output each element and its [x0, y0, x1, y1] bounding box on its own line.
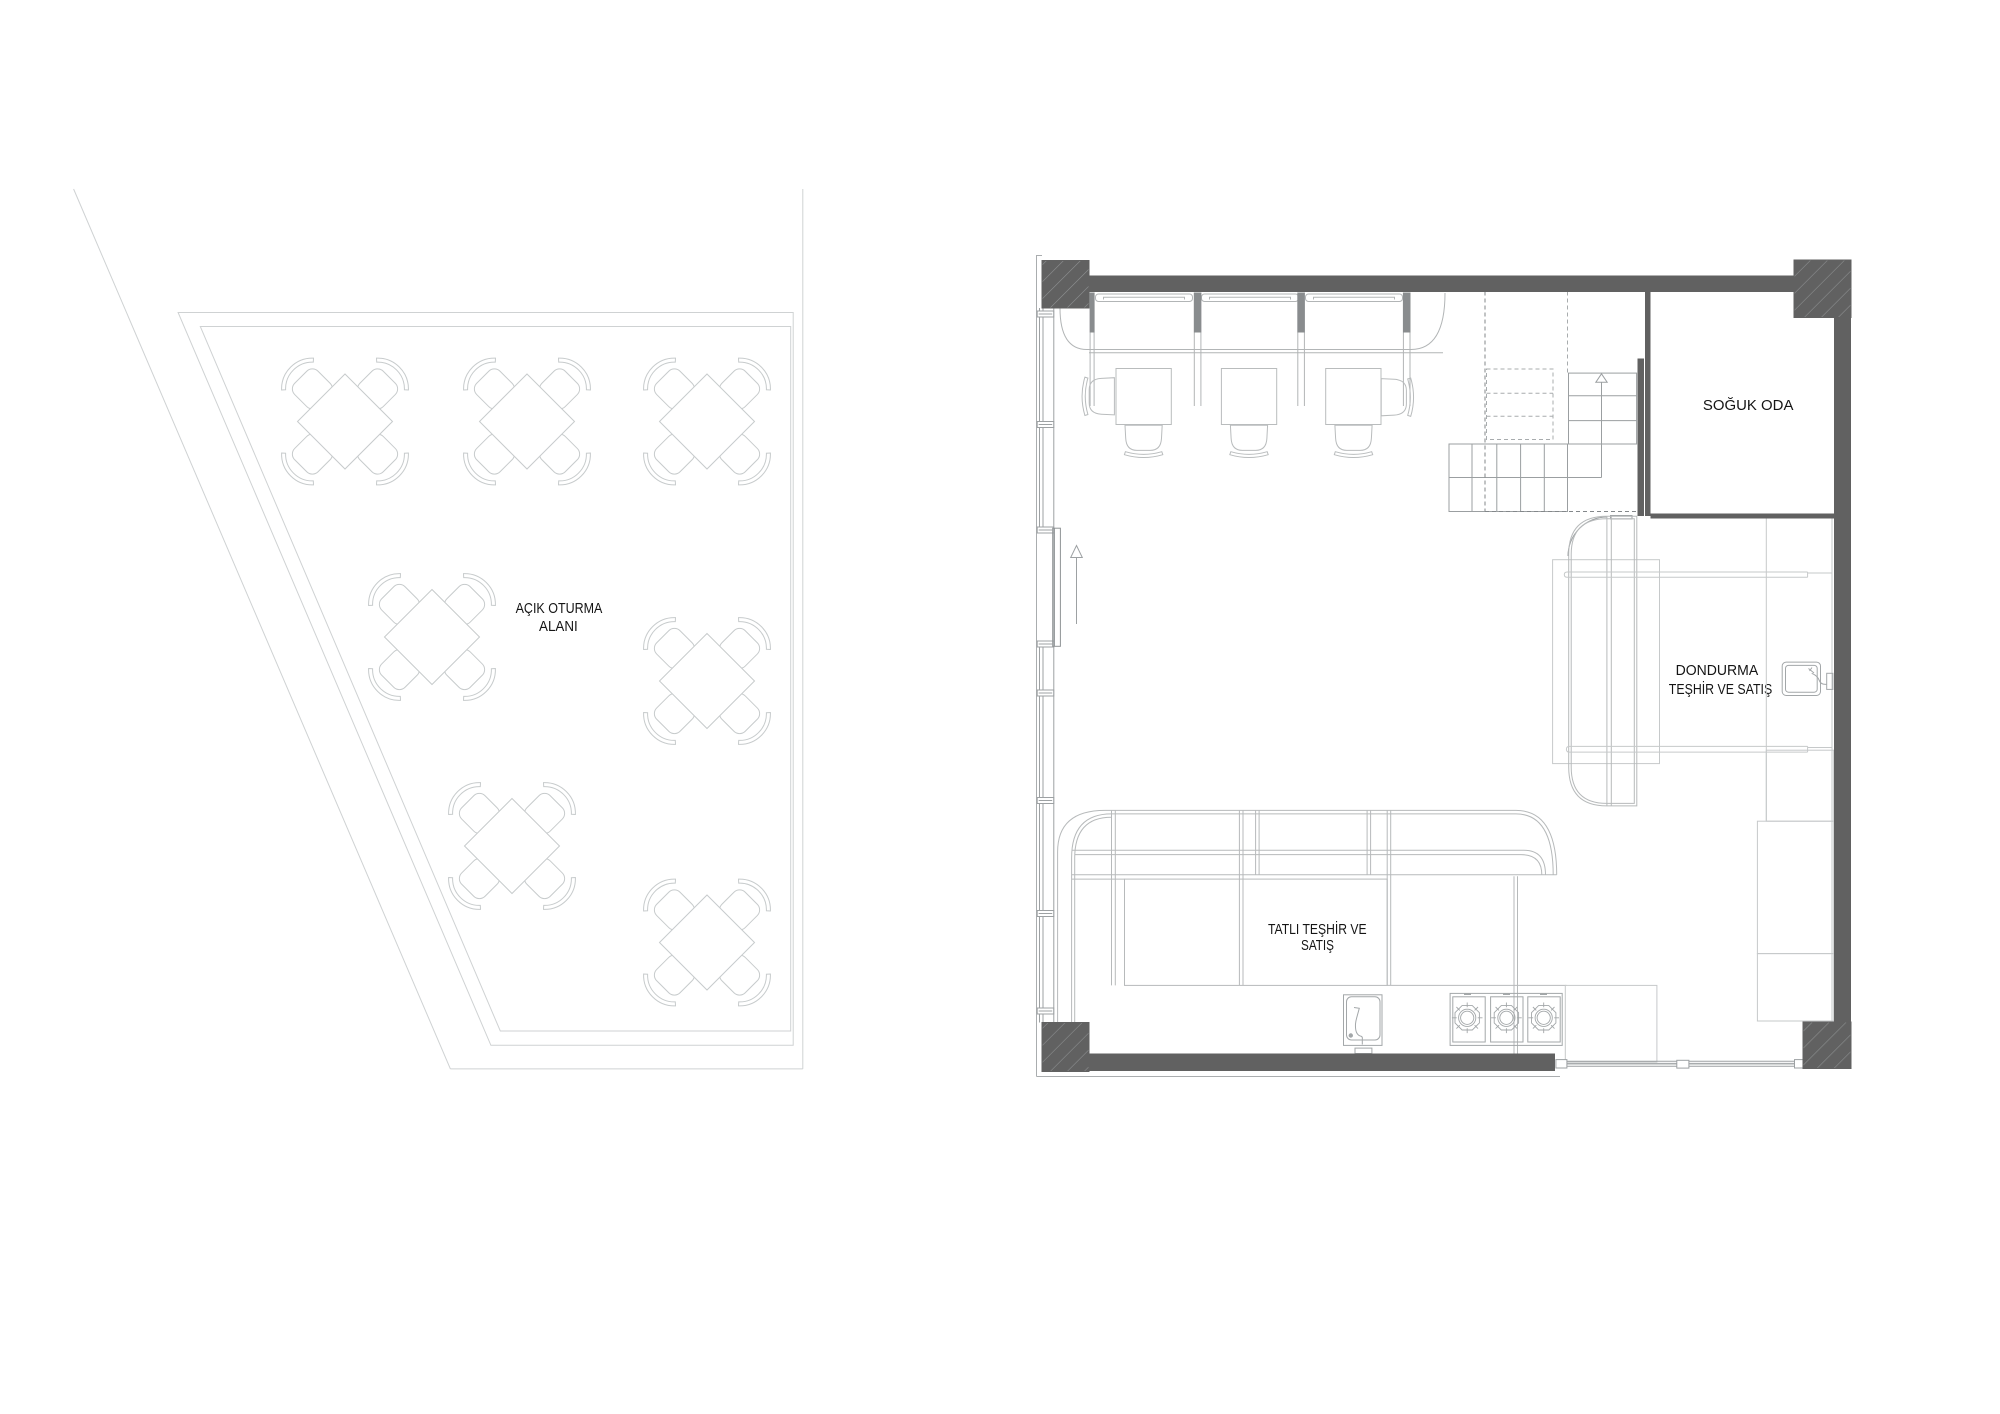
svg-text:ALANI: ALANI	[539, 619, 578, 635]
svg-text:SATIŞ: SATIŞ	[1301, 938, 1334, 954]
svg-text:AÇIK OTURMA: AÇIK OTURMA	[516, 601, 603, 617]
svg-text:DONDURMA: DONDURMA	[1676, 663, 1759, 679]
svg-text:TEŞHİR VE SATIŞ: TEŞHİR VE SATIŞ	[1669, 680, 1772, 698]
svg-text:TATLI TEŞHİR VE: TATLI TEŞHİR VE	[1268, 920, 1367, 938]
svg-text:SOĞUK ODA: SOĞUK ODA	[1703, 397, 1794, 414]
